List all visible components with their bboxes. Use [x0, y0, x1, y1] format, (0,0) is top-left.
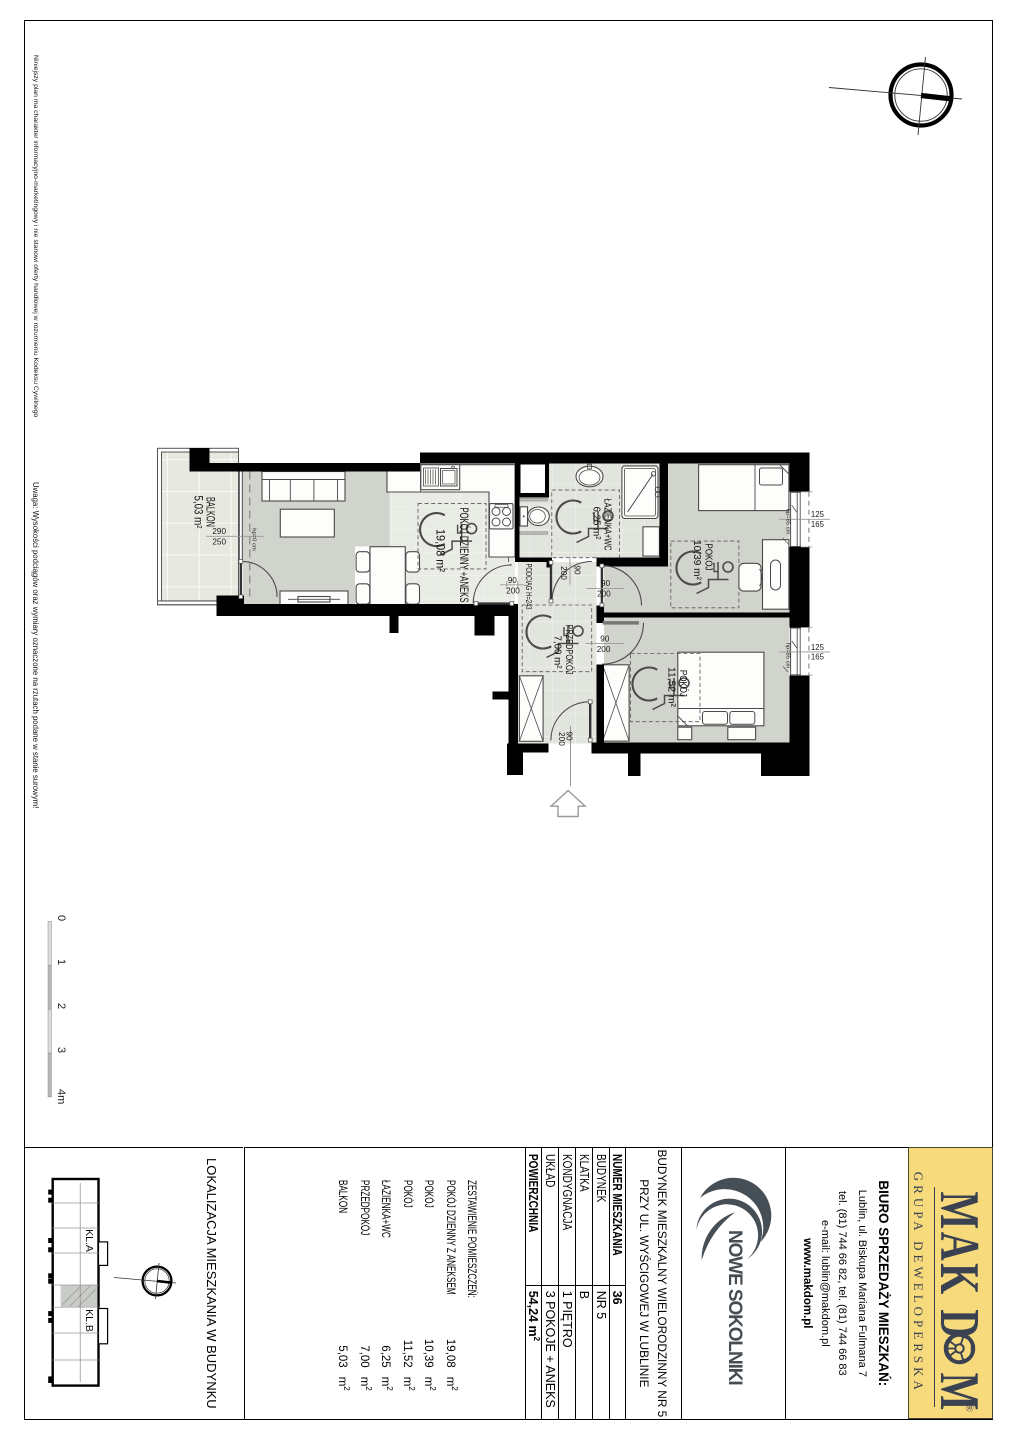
svg-text:90: 90 — [573, 565, 582, 575]
svg-text:125: 125 — [811, 510, 825, 519]
svg-text:POKÓJ: POKÓJ — [677, 670, 690, 697]
svg-text:165: 165 — [811, 653, 825, 662]
svg-text:290: 290 — [212, 527, 226, 536]
svg-text:200: 200 — [557, 732, 566, 746]
svg-text:200: 200 — [597, 590, 611, 599]
svg-text:5,03 m²: 5,03 m² — [192, 496, 204, 529]
svg-text:KL.A: KL.A — [83, 1229, 95, 1252]
svg-text:7,00 m²: 7,00 m² — [552, 636, 564, 669]
svg-text:10,39 m²: 10,39 m² — [691, 540, 703, 580]
svg-text:BALKON: BALKON — [204, 497, 216, 527]
svg-text:6,25 m²: 6,25 m² — [591, 507, 602, 541]
svg-text:PRZEDPOKÓJ: PRZEDPOKÓJ — [563, 624, 576, 674]
svg-text:11,52 m²: 11,52 m² — [666, 667, 678, 707]
svg-text:165: 165 — [811, 520, 825, 529]
svg-text:POKÓJ DZIENNY +ANEKS: POKÓJ DZIENNY +ANEKS — [457, 508, 472, 603]
svg-text:200: 200 — [559, 566, 568, 580]
svg-text:90: 90 — [601, 579, 611, 588]
svg-text:KL.B: KL.B — [83, 1309, 95, 1332]
svg-text:90: 90 — [600, 635, 610, 644]
svg-text:19,08 m²: 19,08 m² — [434, 529, 448, 572]
svg-text:125: 125 — [811, 643, 825, 652]
svg-text:PODCIĄG H=243: PODCIĄG H=243 — [524, 564, 533, 610]
svg-text:ŁAZIENKA+WC: ŁAZIENKA+WC — [602, 499, 613, 551]
svg-text:hp=0 cm: hp=0 cm — [250, 528, 256, 551]
svg-text:200: 200 — [597, 645, 611, 654]
svg-text:POKÓJ: POKÓJ — [703, 544, 716, 571]
svg-text:hp=85 cm: hp=85 cm — [785, 509, 791, 535]
svg-text:200: 200 — [506, 587, 520, 596]
svg-text:250: 250 — [212, 538, 226, 547]
svg-text:hp=85 cm: hp=85 cm — [785, 643, 791, 669]
svg-text:90: 90 — [508, 576, 518, 585]
